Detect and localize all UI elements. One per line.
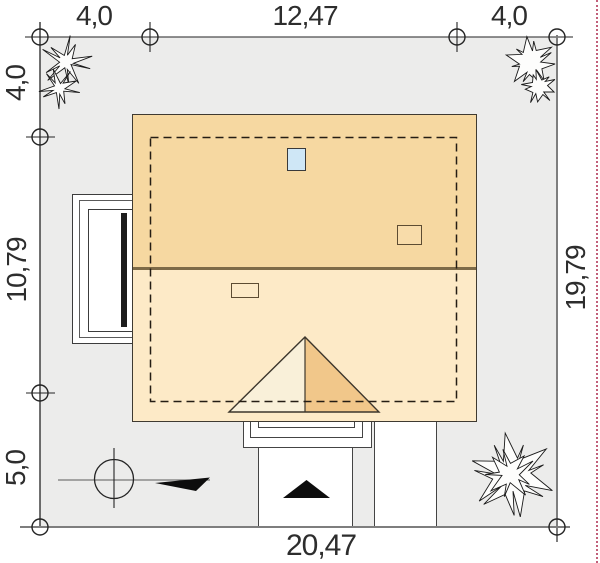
roof-upper-slope (133, 115, 476, 269)
terrace-window-bar (121, 213, 127, 327)
dimension-label-right: 19,79 (562, 245, 590, 310)
site-plan-drawing: 4,0 12,47 4,0 4,0 10,79 5,0 19,79 20,47 (0, 0, 600, 563)
dimension-label-top-left: 4,0 (76, 2, 112, 30)
setback-marker-line (596, 0, 598, 563)
roof-window-right (397, 225, 422, 245)
chimney-skylight (287, 148, 306, 171)
dimension-label-left-top: 4,0 (2, 65, 30, 101)
dimension-label-top-center: 12,47 (272, 2, 337, 30)
driveway (374, 422, 437, 527)
dimension-label-left-bottom: 5,0 (2, 450, 30, 486)
walkway (258, 448, 353, 527)
roof-window-left (231, 283, 259, 298)
dimension-label-top-right: 4,0 (491, 2, 527, 30)
dimension-label-left-middle: 10,79 (3, 237, 31, 302)
roof-ridge-line (133, 267, 476, 270)
dimension-label-bottom: 20,47 (286, 531, 356, 561)
